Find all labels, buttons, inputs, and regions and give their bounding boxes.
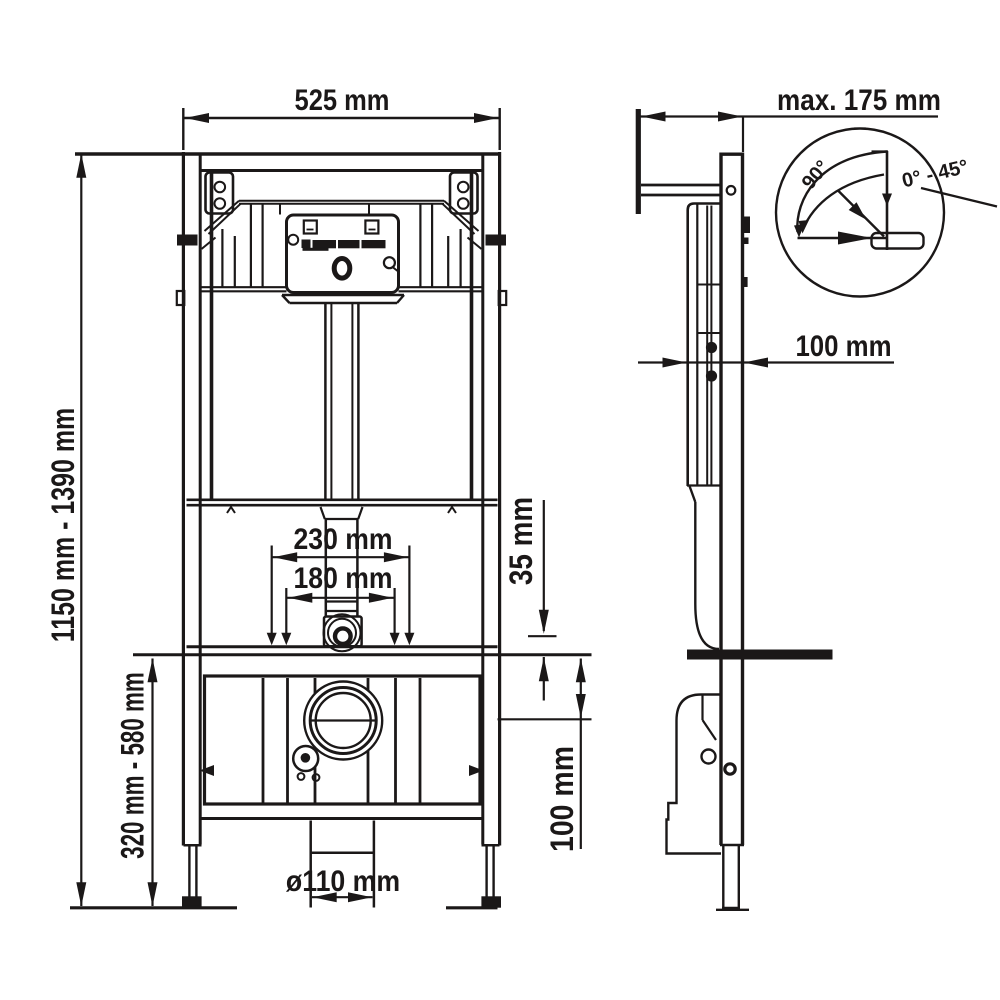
svg-text:230 mm: 230 mm [294,523,393,557]
svg-text:525 mm: 525 mm [295,83,390,116]
svg-text:320 mm - 580 mm: 320 mm - 580 mm [115,672,151,859]
svg-text:100 mm: 100 mm [795,329,891,362]
svg-text:ø110 mm: ø110 mm [286,865,400,899]
svg-text:35 mm: 35 mm [504,497,539,585]
svg-text:100 mm: 100 mm [546,746,581,852]
svg-text:max. 175 mm: max. 175 mm [777,83,941,116]
svg-text:1150 mm - 1390 mm: 1150 mm - 1390 mm [46,408,82,642]
svg-text:180 mm: 180 mm [294,562,393,596]
